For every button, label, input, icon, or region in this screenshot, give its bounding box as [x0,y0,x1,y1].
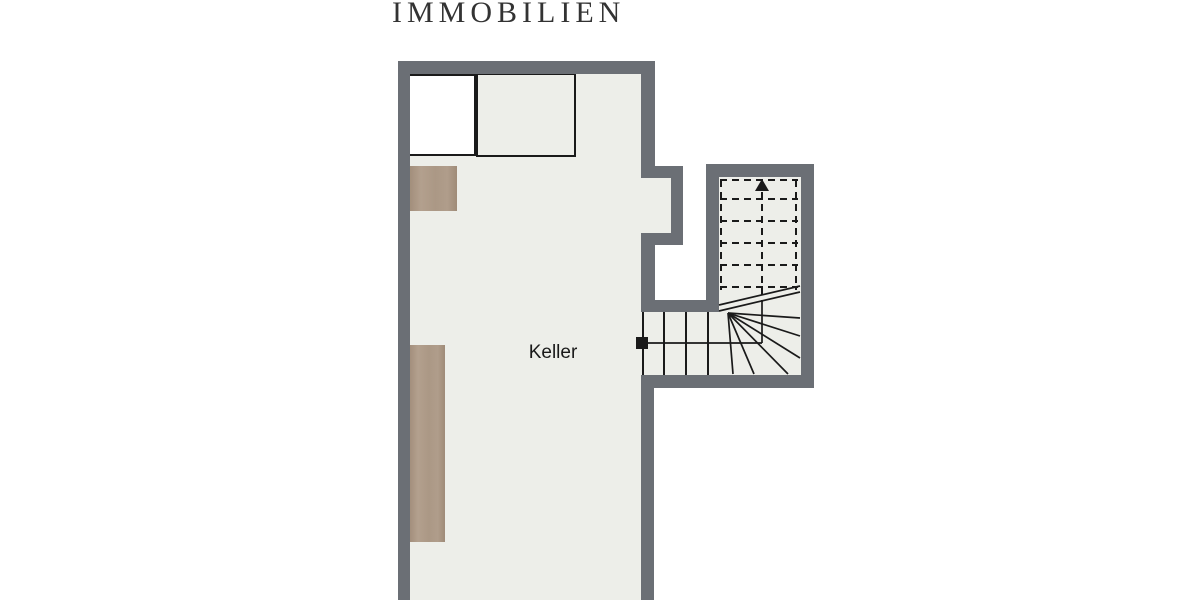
wall-stairwell-bottom [641,375,814,388]
wood-shelf-small [409,166,457,211]
wood-shelf-tall [409,345,445,542]
wall-niche-right [671,178,683,233]
floorplan: Keller [0,0,1200,600]
stair-dashed-tread [720,220,798,222]
stair-dashed-tread [720,264,798,266]
wall-top [398,61,655,74]
stair-direction-up-arrow-icon [755,179,769,191]
wall-niche-top [641,166,683,178]
wall-niche-floor [641,178,671,233]
stair-dashed-edge-right [795,180,797,290]
wall-right-mid [641,245,655,300]
stair-dashed-tread [720,286,798,288]
wall-niche-bottom [641,233,683,245]
stair-walk-line-dashed [761,192,763,302]
stair-tread-line [663,312,665,375]
stair-dashed-tread [720,242,798,244]
stair-dashed-tread [720,198,798,200]
stair-walk-line-start-marker [636,337,648,349]
stair-tread-line [707,312,709,375]
wall-stair-run-top [641,300,719,312]
wall-stairwell-top [706,164,814,177]
open-storage-box [476,73,576,157]
wall-stairwell-left [706,164,719,300]
wall-right-lower [641,388,654,600]
stair-tread-line [685,312,687,375]
stair-dashed-edge-left [720,180,722,290]
white-closet-box [407,74,476,156]
wall-stairwell-right [801,164,814,388]
wall-right-upper [641,74,655,166]
stairwell-floor [719,177,801,375]
wall-left [398,74,410,600]
room-label: Keller [503,342,603,364]
